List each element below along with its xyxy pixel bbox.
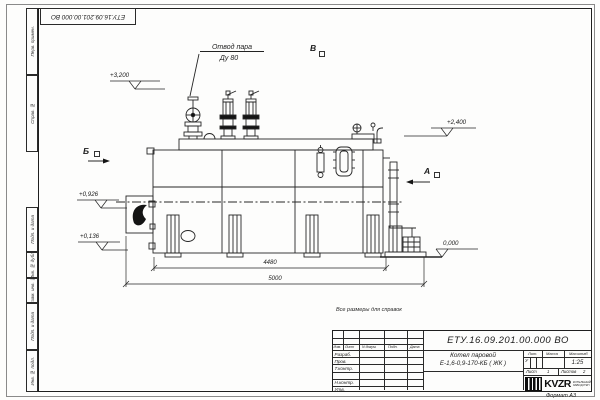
view-ref-square [94, 151, 100, 157]
view-ref-square [319, 51, 325, 57]
callout-steam-outlet-line2: Ду 80 [200, 55, 258, 62]
sheet-value: 1 [547, 369, 549, 374]
scale-value: 1:25 [564, 357, 591, 368]
col-ndoc: N докум. [362, 345, 377, 349]
view-ref-square [434, 172, 440, 178]
rear-valve [352, 123, 383, 143]
reference-note: Все размеры для справок [336, 307, 402, 313]
dome [204, 134, 215, 140]
view-arrow-a [406, 180, 430, 185]
elevation-0000: 0,000 [443, 240, 458, 247]
elevation-0136: +0,136 [80, 233, 99, 240]
document-number: ЕТУ.16.09.201.00.000 ВО [425, 331, 591, 349]
steam-outlet-valve [184, 97, 202, 139]
lit-value: У [525, 359, 528, 364]
manufacturer-logo: KVZR КОТЕЛЬНЫЙ ЗАВОД РЭП [525, 376, 591, 392]
support-legs [165, 215, 381, 257]
col-data: Дата [410, 345, 419, 349]
gost-drawing-sheet: Перв. примен. Справ. № Подп. и дата Инв.… [0, 0, 600, 400]
kvzr-logo-icon [525, 377, 542, 391]
row-utv: Утв. [335, 387, 345, 392]
sheet-label: Лист [526, 369, 537, 374]
dimension-4480: 4480 [250, 260, 290, 266]
elevation-marks [77, 81, 478, 257]
safety-valve-1 [220, 91, 236, 139]
dimension-5000: 5000 [255, 276, 295, 282]
row-prov: Пров. [335, 359, 347, 364]
sheets-value: 2 [583, 369, 585, 374]
view-label-a: А [424, 166, 430, 176]
title-block: Изм. Лист N докум. Подп. Дата Разраб. Пр… [332, 330, 592, 392]
col-podp: Подп. [388, 345, 398, 349]
safety-valve-2 [243, 91, 259, 139]
rear-pipe [383, 158, 399, 228]
product-name-line2: Е-1,6-0,9-170-КБ ( ЖК ) [425, 359, 521, 368]
col-izm: Изм. [334, 345, 342, 349]
row-razrab: Разраб. [335, 352, 352, 357]
row-nkontr: Н.контр. [335, 380, 354, 385]
burner [126, 196, 155, 249]
lit-label: Лит. [528, 351, 537, 356]
feed-pump [385, 226, 426, 257]
row-tkontr: Т.контр. [335, 366, 354, 371]
manhole-oval [181, 231, 195, 242]
elevation-2400: +2,400 [447, 119, 466, 126]
scale-label: Масштаб [569, 351, 588, 356]
bolted-manhole [333, 147, 355, 176]
col-list: Лист [345, 345, 354, 349]
elevation-0926: +0,926 [79, 191, 98, 198]
logo-subtitle-2: ЗАВОД РЭП [573, 384, 591, 387]
callout-steam-outlet-line1: Отвод пара [200, 44, 264, 52]
callout-leader [190, 54, 199, 96]
mass-label: Масса [546, 351, 558, 356]
view-label-v: В [310, 43, 316, 53]
sheets-label: Листов [561, 369, 576, 374]
view-arrow-b [88, 159, 110, 164]
view-label-b: Б [83, 146, 89, 156]
kvzr-logo-text: KVZR [544, 378, 571, 390]
format-note: Формат А3 [530, 393, 592, 399]
elevation-3200: +3,200 [110, 72, 129, 79]
